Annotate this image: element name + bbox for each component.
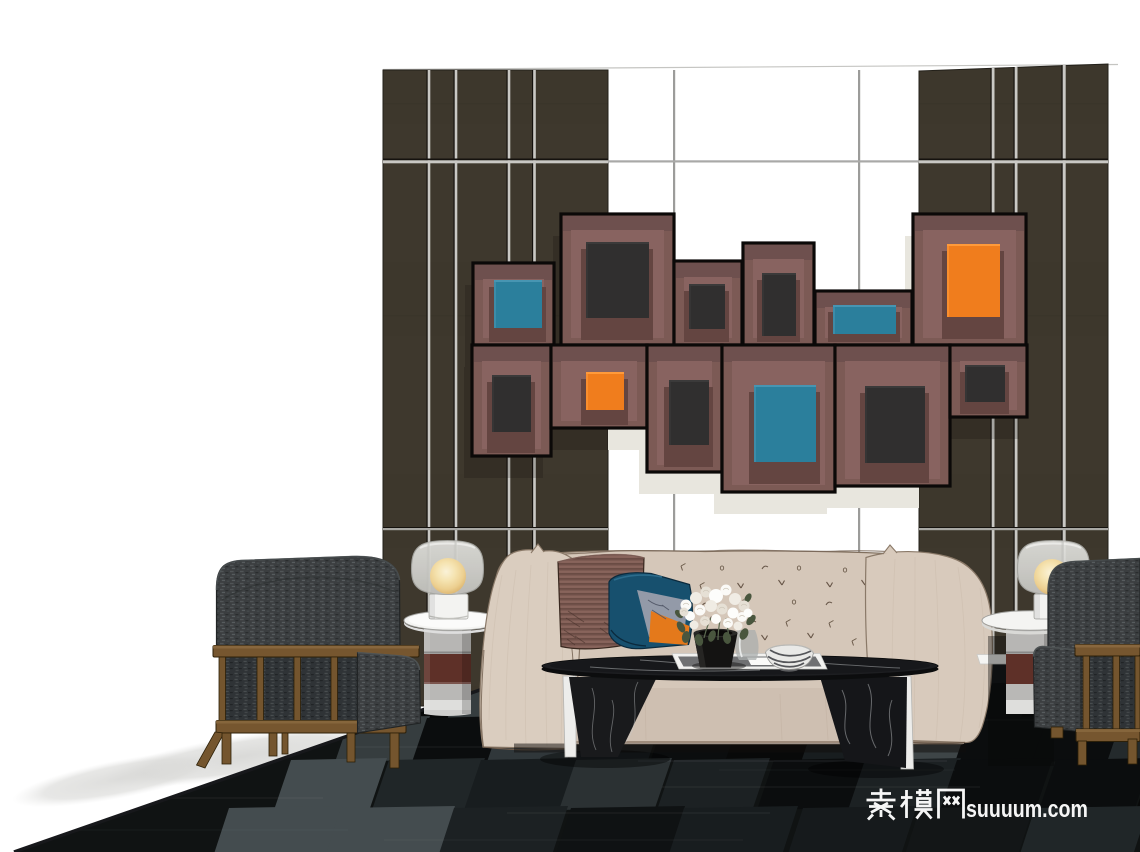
- svg-text:suuuum.com: suuuum.com: [966, 795, 1088, 823]
